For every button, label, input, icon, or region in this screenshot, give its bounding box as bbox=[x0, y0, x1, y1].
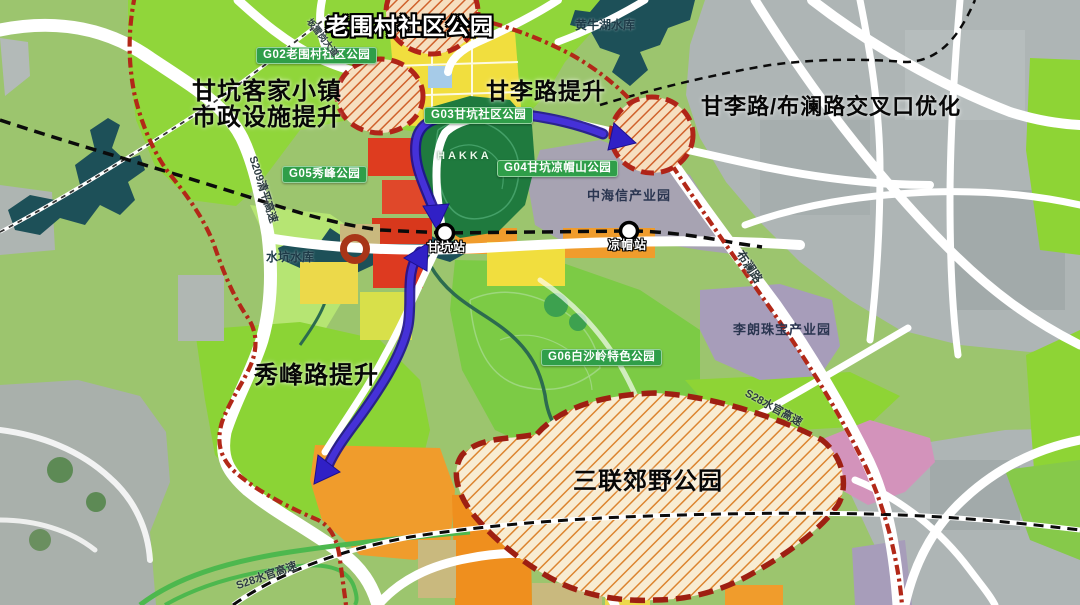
tree-cluster bbox=[47, 457, 73, 483]
dev-block-yellow bbox=[300, 262, 358, 304]
label-station-gankeng: 甘坑站 bbox=[427, 241, 466, 254]
label-sanlian-park: 三联郊野公园 bbox=[573, 469, 723, 495]
park-pill-g02: G02老围村社区公园 bbox=[256, 47, 377, 64]
park-pill-g05: G05秀峰公园 bbox=[282, 166, 367, 183]
satellite-patch-mid-left bbox=[178, 275, 224, 341]
dev-block-orange bbox=[725, 585, 783, 605]
label-gankeng-town-line1: 甘坑客家小镇 bbox=[192, 79, 342, 105]
label-huangniu-reservoir: 黄牛湖水库 bbox=[575, 19, 635, 32]
park-pill-g04: G04甘坑凉帽山公园 bbox=[497, 160, 618, 177]
label-laoweicun-park: 老围村社区公园 bbox=[326, 14, 494, 39]
label-hakka: HAKKA bbox=[437, 151, 492, 163]
label-intersection: 甘李路/布澜路交叉口优化 bbox=[701, 95, 961, 119]
label-xiufeng-road: 秀峰路提升 bbox=[254, 363, 379, 389]
label-lilang-park: 李朗珠宝产业园 bbox=[733, 323, 831, 337]
satellite-area-bottom-left bbox=[0, 380, 170, 605]
tree-cluster bbox=[29, 529, 51, 551]
station-marker-liangmao bbox=[621, 223, 638, 240]
label-station-liangmao: 凉帽站 bbox=[608, 239, 647, 252]
label-gankeng-town-line2: 市政设施提升 bbox=[192, 105, 342, 131]
station-marker-gankeng bbox=[437, 225, 454, 242]
tree-cluster bbox=[86, 492, 106, 512]
label-gankeng-town: 甘坑客家小镇 市政设施提升 bbox=[192, 79, 342, 131]
label-ganli-road: 甘李路提升 bbox=[486, 79, 606, 104]
label-zhonghaixin-park: 中海信产业园 bbox=[587, 189, 671, 203]
park-pill-g03: G03甘坑社区公园 bbox=[424, 107, 533, 124]
label-shuikeng-reservoir: 水坑水库 bbox=[266, 251, 314, 264]
park-pill-g06: G06白沙岭特色公园 bbox=[541, 349, 662, 366]
hatched-circle-gankeng-town bbox=[337, 59, 423, 133]
map-canvas: 老围村社区公园 甘坑客家小镇 市政设施提升 甘李路提升 甘李路/布澜路交叉口优化… bbox=[0, 0, 1080, 605]
